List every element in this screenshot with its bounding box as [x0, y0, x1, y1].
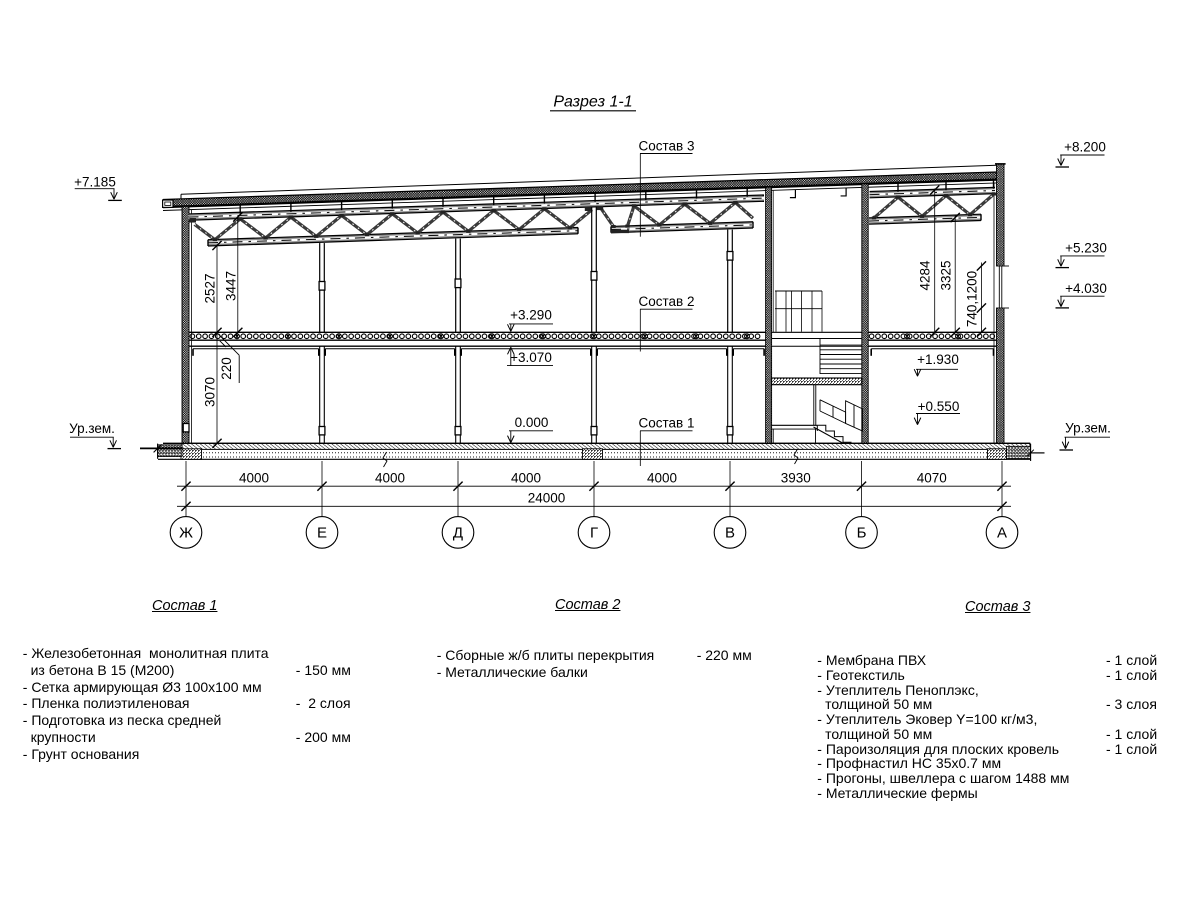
svg-text:+3.070: +3.070 [510, 350, 552, 365]
svg-text:+7.185: +7.185 [74, 175, 116, 190]
svg-text:4000: 4000 [511, 470, 541, 485]
svg-text:740,1200: 740,1200 [965, 271, 980, 327]
svg-text:3930: 3930 [781, 470, 811, 485]
svg-text:+3.290: +3.290 [510, 308, 552, 323]
svg-text:Состав 1: Состав 1 [639, 416, 695, 431]
svg-text:3070: 3070 [203, 377, 218, 407]
svg-text:4000: 4000 [647, 470, 677, 485]
svg-text:+8.200: +8.200 [1064, 140, 1106, 155]
svg-text:3325: 3325 [938, 260, 953, 290]
svg-text:Ур.зем.: Ур.зем. [69, 421, 115, 436]
svg-text:А: А [997, 525, 1007, 542]
svg-text:24000: 24000 [528, 491, 566, 506]
svg-text:0.000: 0.000 [515, 415, 549, 430]
svg-text:Состав 3: Состав 3 [639, 138, 695, 153]
svg-text:В: В [725, 525, 735, 542]
svg-text:3447: 3447 [223, 271, 238, 301]
svg-text:Б: Б [857, 525, 867, 542]
svg-text:+0.550: +0.550 [918, 399, 960, 414]
svg-text:Состав 2: Состав 2 [639, 294, 695, 309]
svg-text:4000: 4000 [239, 470, 269, 485]
svg-text:Ж: Ж [179, 525, 193, 542]
svg-text:Ур.зем.: Ур.зем. [1065, 420, 1111, 435]
svg-text:220: 220 [219, 357, 234, 380]
svg-text:Г: Г [590, 525, 598, 542]
svg-text:Е: Е [317, 525, 327, 542]
svg-text:+1.930: +1.930 [917, 352, 959, 367]
svg-text:4070: 4070 [917, 470, 947, 485]
svg-text:Д: Д [453, 525, 463, 542]
svg-text:2527: 2527 [203, 273, 218, 303]
svg-text:Разрез 1-1: Разрез 1-1 [553, 94, 632, 111]
svg-text:+4.030: +4.030 [1065, 281, 1107, 296]
svg-text:+5.230: +5.230 [1065, 241, 1107, 256]
svg-text:4000: 4000 [375, 470, 405, 485]
svg-text:4284: 4284 [918, 260, 933, 291]
